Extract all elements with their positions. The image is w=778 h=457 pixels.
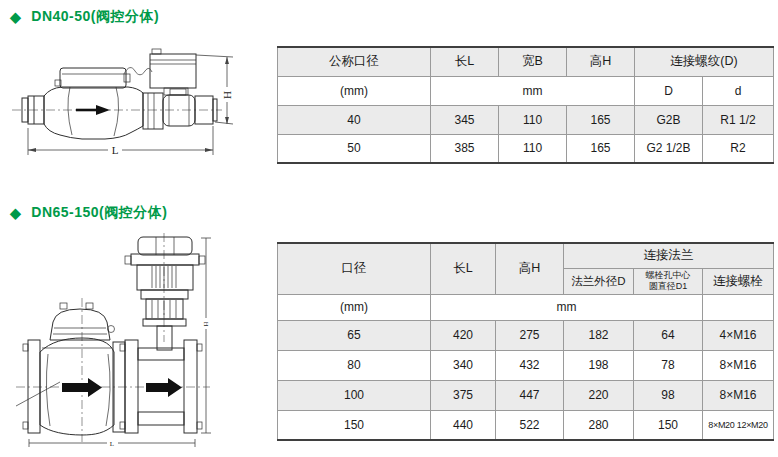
cell-dn: 50: [278, 134, 431, 163]
cell-thread-D: G2B: [635, 105, 703, 134]
cell-flange-od: 220: [564, 380, 634, 410]
col-header-length: 长L: [431, 243, 496, 294]
cell-height: 165: [567, 134, 635, 163]
cell-height: 522: [496, 410, 564, 440]
coupling-nut: [143, 93, 163, 129]
sub-header-thread-D: D: [635, 76, 703, 105]
col-header-nominal-diameter: 公称口径: [278, 47, 431, 76]
sub-header-thread-d: d: [703, 76, 774, 105]
cell-bolts: 4×M16: [703, 320, 774, 350]
diamond-bullet-icon: ◆: [10, 206, 21, 220]
cell-length: 375: [431, 380, 496, 410]
cell-dn: 80: [278, 350, 431, 380]
meter-body: [44, 87, 143, 139]
col-header-height: 高H: [567, 47, 635, 76]
flow-arrow-icon: [76, 105, 110, 115]
cell-dn: 150: [278, 410, 431, 440]
dn40-50-meter-diagram: H L: [10, 38, 270, 190]
cell-length: 440: [431, 410, 496, 440]
spec-row-dn40: 40 345 110 165 G2B R1 1/2: [278, 105, 774, 134]
cell-bolts: 8×M20 12×M20: [703, 410, 774, 440]
col-header-thread: 连接螺纹(D): [635, 47, 774, 76]
spec-row-dn150: 150 440 522 280 150 8×M20 12×M20: [278, 410, 774, 440]
col-header-length: 长L: [431, 47, 499, 76]
dimension-l: L: [29, 439, 195, 448]
empty-cell: [703, 294, 774, 320]
dn40-50-spec-table: 公称口径 长L 宽B 高H 连接螺纹(D) (mm) mm D d 40 345…: [277, 46, 774, 164]
cell-dn: 100: [278, 380, 431, 410]
unit-cell: (mm): [278, 294, 431, 320]
col-header-height: 高H: [496, 243, 564, 294]
col-header-diameter: 口径: [278, 243, 431, 294]
dn65-150-meter-diagram: H L: [10, 230, 270, 457]
datasheet-page: ◆ DN40-50(阀控分体): [0, 0, 778, 457]
dimension-h: H: [196, 55, 234, 124]
sub-header-bolts: 连接螺栓: [703, 268, 774, 294]
col-header-width: 宽B: [499, 47, 567, 76]
valve-actuator-box: [150, 49, 196, 95]
cell-thread-D: G2 1/2B: [635, 134, 703, 163]
diamond-bullet-icon: ◆: [10, 10, 21, 24]
section-heading-dn65-150: ◆ DN65-150(阀控分体): [10, 204, 167, 222]
cell-height: 275: [496, 320, 564, 350]
dimension-h-label: H: [222, 91, 234, 99]
cell-height: 432: [496, 350, 564, 380]
dimension-l-label: L: [112, 144, 119, 156]
cell-width: 110: [499, 134, 567, 163]
unit-cell: (mm): [278, 76, 431, 105]
spec-row-dn80: 80 340 432 198 78 8×M16: [278, 350, 774, 380]
cell-bolts: 8×M16: [703, 350, 774, 380]
sub-header-line1: 螺栓孔中心: [634, 270, 702, 281]
cell-height: 165: [567, 105, 635, 134]
cell-length: 420: [431, 320, 496, 350]
cell-dn: 65: [278, 320, 431, 350]
unit-cell: mm: [431, 76, 635, 105]
sub-header-line2: 圆直径D1: [634, 281, 702, 292]
sub-header-bolt-circle: 螺栓孔中心 圆直径D1: [634, 268, 703, 294]
dimension-l-label: L: [110, 440, 114, 448]
cell-length: 345: [431, 105, 499, 134]
cell-dn: 40: [278, 105, 431, 134]
spec-row-dn100: 100 375 447 220 98 8×M16: [278, 380, 774, 410]
spec-row-dn65: 65 420 275 182 64 4×M16: [278, 320, 774, 350]
flow-arrow-icon: [146, 378, 182, 397]
cell-bolt-circle: 98: [634, 380, 703, 410]
col-header-flange: 连接法兰: [564, 243, 774, 268]
leader-line: [16, 382, 60, 406]
table-unit-row: (mm) mm D d: [278, 76, 774, 105]
cell-length: 340: [431, 350, 496, 380]
dimension-l: L: [28, 126, 213, 156]
dn65-150-spec-table: 口径 长L 高H 连接法兰 法兰外径D 螺栓孔中心 圆直径D1 连接螺栓 (mm…: [277, 242, 774, 441]
unit-cell: mm: [431, 294, 703, 320]
cell-bolt-circle: 150: [634, 410, 703, 440]
section-title: DN40-50(阀控分体): [31, 8, 159, 26]
cell-bolt-circle: 78: [634, 350, 703, 380]
section-title: DN65-150(阀控分体): [31, 204, 167, 222]
cell-height: 447: [496, 380, 564, 410]
cell-flange-od: 182: [564, 320, 634, 350]
cell-bolt-circle: 64: [634, 320, 703, 350]
dimension-h-label: H: [203, 322, 210, 327]
spec-row-dn50: 50 385 110 165 G2 1/2B R2: [278, 134, 774, 163]
flow-arrow-icon: [62, 378, 102, 397]
cell-width: 110: [499, 105, 567, 134]
table-unit-row: (mm) mm: [278, 294, 774, 320]
cell-bolts: 8×M16: [703, 380, 774, 410]
register-cap: [55, 68, 130, 88]
table-header-row: 公称口径 长L 宽B 高H 连接螺纹(D): [278, 47, 774, 76]
cell-thread-d: R1 1/2: [703, 105, 774, 134]
ball-valve-body: [163, 89, 195, 126]
valve-actuator: [125, 237, 205, 350]
dimension-h: H: [201, 238, 211, 433]
cell-length: 385: [431, 134, 499, 163]
section-heading-dn40-50: ◆ DN40-50(阀控分体): [10, 8, 159, 26]
cell-thread-d: R2: [703, 134, 774, 163]
cell-flange-od: 198: [564, 350, 634, 380]
sub-header-flange-od: 法兰外径D: [564, 268, 634, 294]
cell-flange-od: 280: [564, 410, 634, 440]
table-header-row: 口径 长L 高H 连接法兰: [278, 243, 774, 268]
